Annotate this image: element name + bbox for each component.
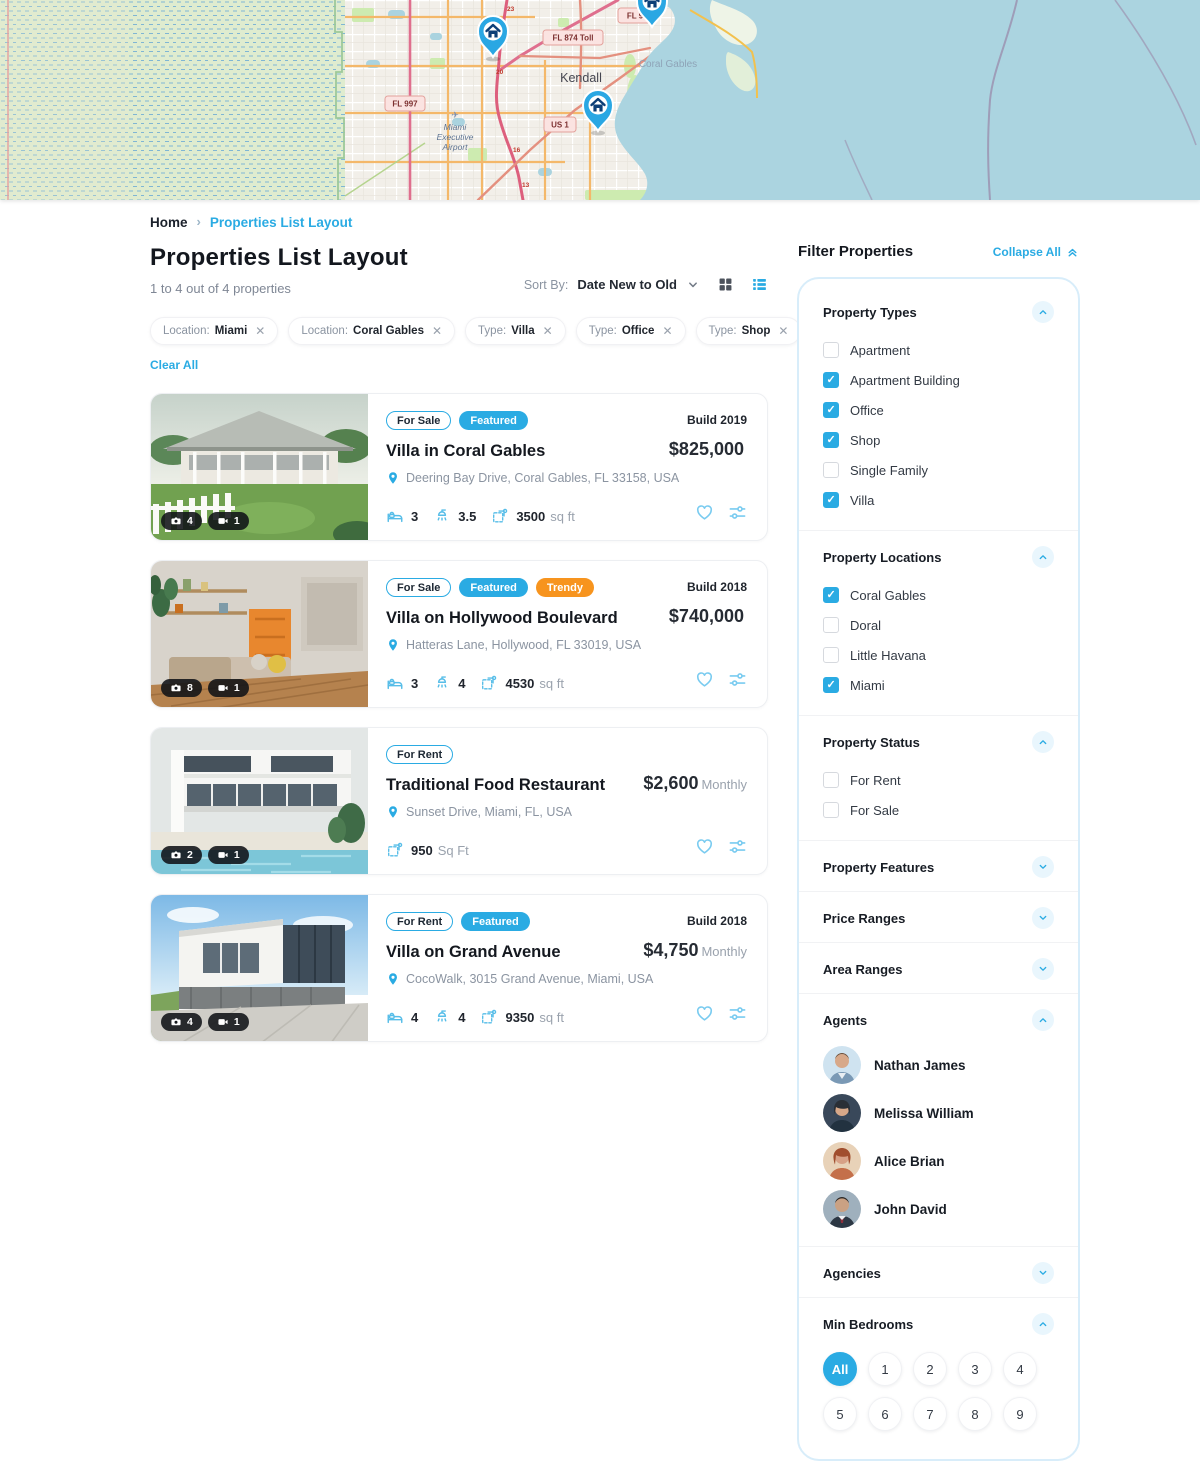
section-header-agents[interactable]: Agents (823, 1006, 1054, 1036)
filter-panel: Property Types Apartment Apartment Build… (797, 277, 1080, 1461)
section-min-bedrooms: Min Bedrooms All 1 2 3 4 5 6 7 8 9 (799, 1298, 1078, 1447)
collapse-toggle-button[interactable] (1032, 1313, 1054, 1335)
compare-button[interactable] (728, 670, 747, 692)
chevron-down-icon[interactable] (686, 278, 700, 292)
checkbox (823, 372, 839, 388)
checkbox-apartment[interactable]: Apartment (823, 342, 1054, 358)
camera-icon (170, 1016, 182, 1028)
breadcrumb-current: Properties List Layout (210, 215, 353, 230)
checkbox (823, 802, 839, 818)
favorite-button[interactable] (695, 670, 714, 692)
checkbox-villa[interactable]: Villa (823, 492, 1054, 508)
chevron-up-icon (1037, 1318, 1049, 1330)
svg-text:Airport: Airport (441, 142, 468, 152)
bed-icon (386, 507, 404, 525)
svg-text:✈: ✈ (451, 110, 459, 120)
heart-icon (695, 837, 714, 856)
bedrooms-option-2[interactable]: 2 (913, 1352, 947, 1386)
section-price-ranges: Price Ranges (799, 892, 1078, 943)
list-view-button[interactable] (751, 276, 768, 293)
video-icon (217, 515, 229, 527)
photo-badges: 2 1 (161, 846, 249, 864)
filter-chip-shop[interactable]: Type: Shop ✕ (696, 317, 802, 345)
video-icon (217, 1016, 229, 1028)
collapse-toggle-button[interactable] (1032, 1009, 1054, 1031)
bath-icon (433, 1008, 451, 1026)
photo-count-badge[interactable]: 2 (161, 846, 202, 864)
camera-icon (170, 849, 182, 861)
heart-icon (695, 670, 714, 689)
filter-chip-miami[interactable]: Location: Miami ✕ (150, 317, 278, 345)
double-chevron-up-icon (1066, 245, 1079, 258)
chevron-down-icon (1037, 1267, 1049, 1279)
checkbox-apartment-building[interactable]: Apartment Building (823, 372, 1054, 388)
checkbox (823, 647, 839, 663)
map[interactable]: 23 20 16 13 FL 874 Toll FL 997 US 1 FL 9… (0, 0, 1200, 200)
video-count-badge[interactable]: 1 (208, 512, 249, 530)
section-area-ranges: Area Ranges (799, 943, 1078, 994)
compare-button[interactable] (728, 1004, 747, 1026)
collapse-toggle-button[interactable] (1032, 958, 1054, 980)
collapse-toggle-button[interactable] (1032, 301, 1054, 323)
property-price: $4,750Monthly (643, 940, 747, 961)
photo-badges: 4 1 (161, 512, 249, 530)
photo-badges: 4 1 (161, 1013, 249, 1031)
min-bedrooms-options: All 1 2 3 4 5 6 7 8 9 (823, 1352, 1054, 1431)
location-pin-icon (386, 972, 400, 986)
photo-count-badge[interactable]: 4 (161, 512, 202, 530)
checkbox-for-sale[interactable]: For Sale (823, 802, 1054, 818)
location-pin-icon (386, 805, 400, 819)
chevron-up-icon (1037, 551, 1049, 563)
breadcrumb-home-link[interactable]: Home (150, 215, 188, 230)
status-badge: For Sale (386, 411, 451, 430)
checkbox (823, 617, 839, 633)
location-pin-icon (386, 471, 400, 485)
collapse-toggle-button[interactable] (1032, 731, 1054, 753)
filter-chip-villa[interactable]: Type: Villa ✕ (465, 317, 566, 345)
breadcrumb: Home › Properties List Layout (150, 215, 768, 230)
compare-button[interactable] (728, 837, 747, 859)
property-address: Sunset Drive, Miami, FL, USA (386, 805, 747, 819)
property-price: $740,000 (669, 606, 747, 627)
area-icon (491, 507, 509, 525)
sliders-icon (728, 837, 747, 856)
svg-text:13: 13 (522, 182, 530, 189)
road-badge-fl997: FL 997 (392, 100, 418, 109)
chevron-up-icon (1037, 1014, 1049, 1026)
collapse-toggle-button[interactable] (1032, 546, 1054, 568)
build-year: Build 2018 (687, 580, 747, 594)
build-year: Build 2019 (687, 413, 747, 427)
property-features: 3 3.5 3500sq ft (386, 507, 747, 525)
checkbox (823, 462, 839, 478)
sliders-icon (728, 670, 747, 689)
build-year: Build 2018 (687, 914, 747, 928)
status-badge: For Rent (386, 745, 453, 764)
location-pin-icon (386, 638, 400, 652)
map-water (615, 0, 1200, 200)
section-property-features: Property Features (799, 841, 1078, 892)
status-badge: For Sale (386, 578, 451, 597)
favorite-button[interactable] (695, 837, 714, 859)
area-icon (480, 1008, 498, 1026)
section-property-status: Property Status For Rent For Sale (799, 716, 1078, 841)
agent-melissa-william[interactable]: Melissa William (823, 1094, 1054, 1132)
property-card-body: For Rent Traditional Food Restaurant $2,… (368, 728, 767, 874)
svg-text:Executive: Executive (437, 132, 474, 142)
remove-chip-icon[interactable]: ✕ (778, 324, 788, 338)
section-header-property-types[interactable]: Property Types (823, 298, 1054, 328)
chevron-down-icon (1037, 861, 1049, 873)
video-count-badge[interactable]: 1 (208, 1013, 249, 1031)
bedrooms-option-all[interactable]: All (823, 1352, 857, 1386)
active-filter-chips: Location: Miami ✕ Location: Coral Gables… (150, 317, 768, 345)
status-badge: For Rent (386, 912, 453, 931)
section-property-locations: Property Locations Coral Gables Doral Li… (799, 531, 1078, 716)
avatar (823, 1142, 861, 1180)
svg-text:23: 23 (507, 6, 515, 13)
section-header-agencies[interactable]: Agencies (823, 1259, 1054, 1289)
avatar (823, 1046, 861, 1084)
checkbox (823, 432, 839, 448)
filter-sidebar: Filter Properties Collapse All Property … (797, 243, 1080, 1461)
area-icon (480, 674, 498, 692)
sort-dropdown[interactable]: Date New to Old (577, 277, 677, 292)
area-icon (386, 841, 404, 859)
breadcrumb-chevron-icon: › (197, 214, 201, 229)
section-agents: Agents Nathan James Melissa William Al (799, 994, 1078, 1247)
photo-count-badge[interactable]: 8 (161, 679, 202, 697)
checkbox-little-havana[interactable]: Little Havana (823, 647, 1054, 663)
property-photo[interactable]: 2 1 (151, 728, 368, 874)
remove-chip-icon[interactable]: ✕ (662, 324, 672, 338)
favorite-button[interactable] (695, 1004, 714, 1026)
video-icon (217, 849, 229, 861)
section-agencies: Agencies (799, 1247, 1078, 1298)
property-photo[interactable]: 8 1 (151, 561, 368, 707)
section-header-property-features[interactable]: Property Features (823, 853, 1054, 883)
section-header-property-locations[interactable]: Property Locations (823, 543, 1054, 573)
checkbox (823, 677, 839, 693)
grid-view-button[interactable] (717, 276, 734, 293)
property-features: 950Sq Ft (386, 841, 747, 859)
property-card-body: For Sale Featured Build 2019 Villa in Co… (368, 394, 767, 540)
sort-by-label: Sort By: (524, 278, 568, 292)
checkbox (823, 772, 839, 788)
compare-button[interactable] (728, 503, 747, 525)
video-count-badge[interactable]: 1 (208, 846, 249, 864)
remove-chip-icon[interactable]: ✕ (543, 324, 553, 338)
bedrooms-option-8[interactable]: 8 (958, 1397, 992, 1431)
page-title: Properties List Layout (150, 244, 768, 272)
agent-alice-brian[interactable]: Alice Brian (823, 1142, 1054, 1180)
collapse-all-button[interactable]: Collapse All (993, 245, 1079, 259)
collapse-toggle-button[interactable] (1032, 856, 1054, 878)
sidebar-title: Filter Properties (798, 243, 913, 260)
checkbox (823, 342, 839, 358)
sliders-icon (728, 1004, 747, 1023)
section-header-min-bedrooms[interactable]: Min Bedrooms (823, 1310, 1054, 1340)
bedrooms-option-6[interactable]: 6 (868, 1397, 902, 1431)
checkbox (823, 587, 839, 603)
checkbox-single-family[interactable]: Single Family (823, 462, 1054, 478)
camera-icon (170, 682, 182, 694)
featured-badge: Featured (459, 411, 527, 430)
property-price: $2,600Monthly (643, 773, 747, 794)
bedrooms-option-4[interactable]: 4 (1003, 1352, 1037, 1386)
bedrooms-option-9[interactable]: 9 (1003, 1397, 1037, 1431)
property-card: 4 1 For Sale Featured Build 2019 Villa i… (150, 393, 768, 541)
section-header-property-status[interactable]: Property Status (823, 728, 1054, 758)
bed-icon (386, 1008, 404, 1026)
bedrooms-option-3[interactable]: 3 (958, 1352, 992, 1386)
avatar (823, 1094, 861, 1132)
clear-all-button[interactable]: Clear All (150, 358, 198, 372)
map-label-coral-gables: Coral Gables (639, 59, 697, 70)
bedrooms-option-5[interactable]: 5 (823, 1397, 857, 1431)
property-card: 4 1 For Rent Featured Build 2018 Villa o… (150, 894, 768, 1042)
property-features: 4 4 9350sq ft (386, 1008, 747, 1026)
featured-badge: Featured (459, 578, 527, 597)
property-address: Deering Bay Drive, Coral Gables, FL 3315… (386, 471, 747, 485)
video-count-badge[interactable]: 1 (208, 679, 249, 697)
section-header-price-ranges[interactable]: Price Ranges (823, 904, 1054, 934)
property-address: Hatteras Lane, Hollywood, FL 33019, USA (386, 638, 747, 652)
photo-badges: 8 1 (161, 679, 249, 697)
collapse-toggle-button[interactable] (1032, 1262, 1054, 1284)
checkbox-shop[interactable]: Shop (823, 432, 1054, 448)
favorite-button[interactable] (695, 503, 714, 525)
sliders-icon (728, 503, 747, 522)
property-card: 2 1 For Rent Traditional Food Restaurant… (150, 727, 768, 875)
avatar (823, 1190, 861, 1228)
checkbox-miami[interactable]: Miami (823, 677, 1054, 693)
svg-text:20: 20 (496, 69, 504, 76)
heart-icon (695, 503, 714, 522)
collapse-toggle-button[interactable] (1032, 907, 1054, 929)
camera-icon (170, 515, 182, 527)
road-badge-us1: US 1 (551, 121, 569, 130)
chevron-up-icon (1037, 736, 1049, 748)
bath-icon (433, 674, 451, 692)
property-price: $825,000 (669, 439, 747, 460)
chevron-down-icon (1037, 912, 1049, 924)
filter-chip-coral-gables[interactable]: Location: Coral Gables ✕ (288, 317, 455, 345)
section-header-area-ranges[interactable]: Area Ranges (823, 955, 1054, 985)
road-badge-fl874: FL 874 Toll (552, 34, 593, 43)
svg-text:Miami: Miami (444, 122, 468, 132)
remove-chip-icon[interactable]: ✕ (255, 324, 265, 338)
property-card-body: For Rent Featured Build 2018 Villa on Gr… (368, 895, 767, 1041)
checkbox-office[interactable]: Office (823, 402, 1054, 418)
chevron-down-icon (1037, 963, 1049, 975)
property-photo[interactable]: 4 1 (151, 895, 368, 1041)
trendy-badge: Trendy (536, 578, 594, 597)
bedrooms-option-1[interactable]: 1 (868, 1352, 902, 1386)
bed-icon (386, 674, 404, 692)
property-features: 3 4 4530sq ft (386, 674, 747, 692)
main-content: Home › Properties List Layout Properties… (150, 215, 768, 1042)
map-label-kendall: Kendall (560, 71, 602, 85)
property-card: 8 1 For Sale Featured Trendy Build 2018 … (150, 560, 768, 708)
checkbox (823, 402, 839, 418)
checkbox (823, 492, 839, 508)
property-card-body: For Sale Featured Trendy Build 2018 Vill… (368, 561, 767, 707)
video-icon (217, 682, 229, 694)
property-address: CocoWalk, 3015 Grand Avenue, Miami, USA (386, 972, 747, 986)
agent-nathan-james[interactable]: Nathan James (823, 1046, 1054, 1084)
agent-john-david[interactable]: John David (823, 1190, 1054, 1228)
photo-count-badge[interactable]: 4 (161, 1013, 202, 1031)
section-property-types: Property Types Apartment Apartment Build… (799, 286, 1078, 531)
filter-chip-office[interactable]: Type: Office ✕ (576, 317, 686, 345)
sort-row: Sort By: Date New to Old (524, 276, 768, 293)
bedrooms-option-7[interactable]: 7 (913, 1397, 947, 1431)
chevron-up-icon (1037, 306, 1049, 318)
checkbox-for-rent[interactable]: For Rent (823, 772, 1054, 788)
bath-icon (433, 507, 451, 525)
svg-text:16: 16 (513, 147, 521, 154)
heart-icon (695, 1004, 714, 1023)
featured-badge: Featured (461, 912, 529, 931)
remove-chip-icon[interactable]: ✕ (432, 324, 442, 338)
checkbox-doral[interactable]: Doral (823, 617, 1054, 633)
checkbox-coral-gables[interactable]: Coral Gables (823, 587, 1054, 603)
property-photo[interactable]: 4 1 (151, 394, 368, 540)
